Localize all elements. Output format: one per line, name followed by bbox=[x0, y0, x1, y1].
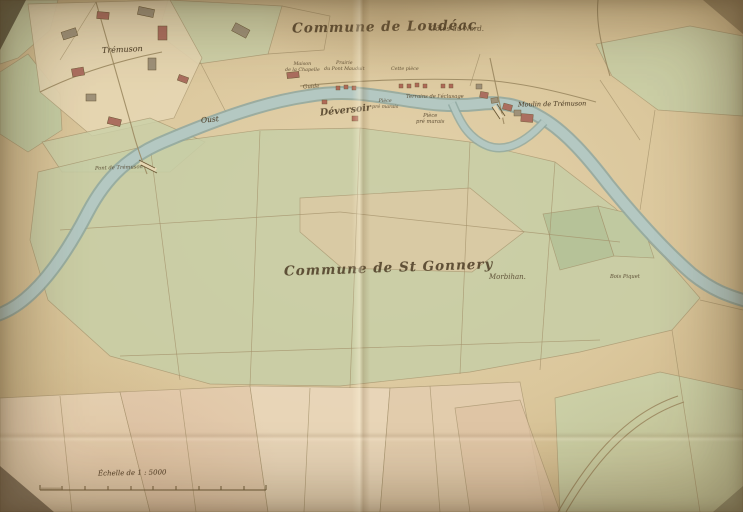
map-sheet: Commune de Loudéac Côtes du Nord. Commun… bbox=[0, 0, 743, 512]
map-drawing bbox=[0, 0, 743, 512]
